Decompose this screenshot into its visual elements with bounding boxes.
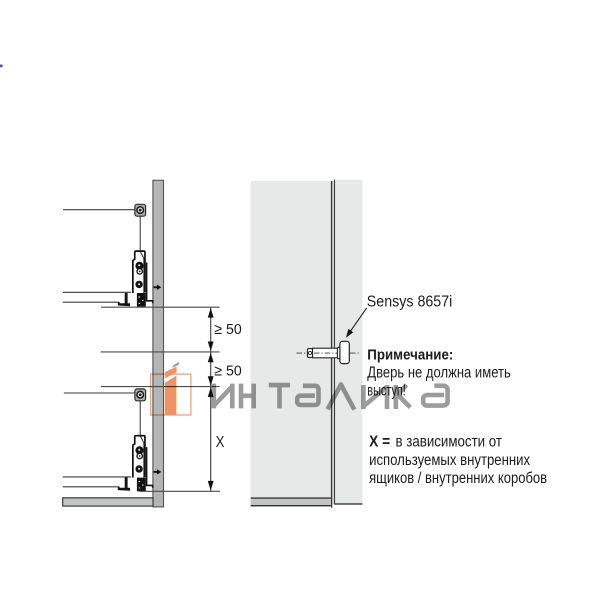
svg-text:X: X: [216, 434, 225, 451]
svg-text:в зависимости от: в зависимости от: [396, 433, 503, 450]
svg-text:X =: X =: [369, 433, 390, 450]
svg-text:используемых внутренних: используемых внутренних: [369, 452, 530, 469]
svg-text:ящиков / внутренних коробов: ящиков / внутренних коробов: [369, 470, 547, 487]
svg-text:Примечание:: Примечание:: [367, 346, 453, 363]
svg-text:Sensys 8657i: Sensys 8657i: [367, 293, 453, 310]
svg-text:Дверь не должна иметь: Дверь не должна иметь: [367, 364, 511, 381]
svg-text:≥ 50: ≥ 50: [214, 363, 241, 380]
svg-text:≥ 50: ≥ 50: [214, 321, 241, 338]
